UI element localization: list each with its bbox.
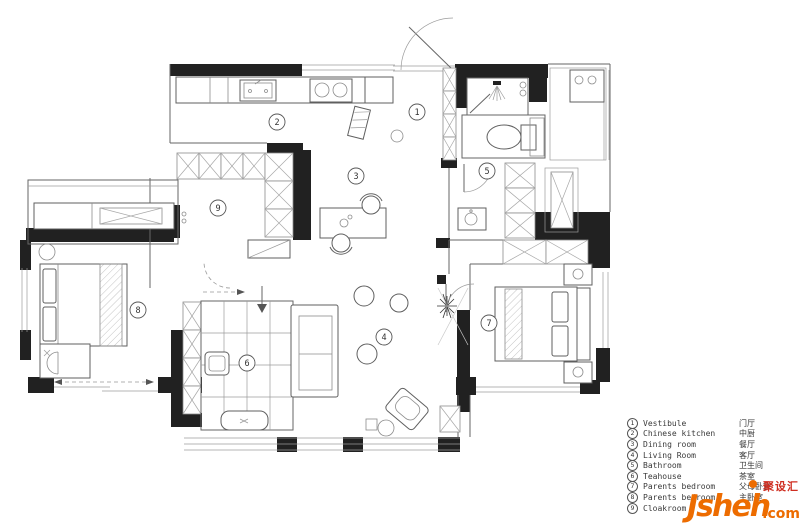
legend-number: 8: [627, 492, 638, 503]
stool: [391, 130, 403, 142]
bench: [221, 411, 268, 430]
legend-item: 3 Dining room 餐厅: [627, 439, 799, 450]
dresser: [248, 240, 290, 258]
legend-label-en: Vestibule: [643, 419, 739, 428]
room-label-2: 2: [269, 114, 285, 130]
toilet-icon: [487, 125, 536, 150]
legend-label-en: Dining room: [643, 440, 739, 449]
legend-item: 1 Vestibule 门厅: [627, 418, 799, 429]
step-arrow: [203, 286, 267, 313]
dining: [320, 194, 386, 254]
pouf: [354, 286, 374, 306]
legend-label-en: Living Room: [643, 451, 739, 460]
room-label-3: 3: [348, 168, 364, 184]
vanity-sink: [458, 208, 486, 230]
legend-number: 4: [627, 450, 638, 461]
legend-label-cn: 门厅: [739, 418, 755, 429]
legend-label-cn: 客厅: [739, 450, 755, 461]
stool: [39, 244, 55, 260]
tall-cabinet: [348, 106, 371, 139]
headboard: [577, 288, 590, 360]
svg-text:3: 3: [353, 172, 358, 182]
shower-icon: [489, 81, 505, 101]
sliding-door-8: [54, 379, 158, 391]
pillow: [43, 307, 56, 341]
bedroom-7: [495, 264, 592, 383]
room-label-4: 4: [376, 329, 392, 345]
pillow: [552, 292, 568, 322]
tea-table: [205, 352, 229, 375]
legend-label-en: Bathroom: [643, 461, 739, 470]
blanket: [100, 264, 122, 346]
svg-text:6: 6: [244, 359, 249, 369]
bed-8: [40, 264, 127, 346]
legend-number: 1: [627, 418, 638, 429]
svg-text:8: 8: [135, 306, 140, 316]
sofa: [291, 305, 338, 397]
pillow: [43, 269, 56, 303]
room-label-6: 6: [239, 355, 255, 371]
armchair: [384, 387, 430, 432]
svg-text:2: 2: [274, 118, 279, 128]
legend-label-cn: 餐厅: [739, 439, 755, 450]
legend-number: 7: [627, 481, 638, 492]
pouf: [357, 344, 377, 364]
cloakroom: [177, 153, 293, 288]
nightstand: [564, 264, 592, 285]
room-label-9: 9: [210, 200, 226, 216]
legend-item: 5 Bathroom 卫生间: [627, 460, 799, 471]
legend-number: 3: [627, 439, 638, 450]
logo-brand: Jsheh: [687, 489, 769, 524]
page: { "plan": { "labels": [ {"num":"1"},{"nu…: [0, 0, 800, 521]
legend-item: 4 Living Room 客厅: [627, 450, 799, 461]
nightstand: [564, 362, 592, 383]
blanket: [505, 289, 522, 359]
wardrobe-8: [183, 302, 201, 414]
sink-icon: [240, 80, 276, 101]
logo-tld: .com: [762, 506, 800, 522]
room-label-7: 7: [481, 315, 497, 331]
side-table: [366, 419, 377, 430]
kitchen: [176, 77, 393, 139]
legend-number: 9: [627, 503, 638, 514]
legend-number: 6: [627, 471, 638, 482]
logo-cn-badge: 聚设汇: [763, 478, 799, 494]
pouf: [390, 294, 408, 312]
svg-text:9: 9: [215, 204, 220, 214]
bed-7: [495, 287, 590, 361]
bedroom7-door: [437, 275, 474, 312]
svg-text:1: 1: [414, 108, 419, 118]
fridge: [365, 77, 393, 103]
entrance-door: [393, 18, 455, 71]
legend-label-cn: 卫生间: [739, 460, 763, 471]
legend-label-cn: 中厨: [739, 428, 755, 439]
side-stool: [378, 420, 394, 436]
watermark-logo: Jsheh 聚设汇 .com: [687, 477, 799, 520]
legend-number: 5: [627, 460, 638, 471]
svg-text:5: 5: [484, 167, 489, 177]
room-label-1: 1: [409, 104, 425, 120]
room-label-5: 5: [479, 163, 495, 179]
room-label-8: 8: [130, 302, 146, 318]
stove-icon: [310, 79, 352, 102]
shower-door: [470, 94, 490, 113]
desk: [40, 344, 90, 378]
legend-item: 2 Chinese kitchen 中厨: [627, 429, 799, 440]
svg-text:4: 4: [381, 333, 386, 343]
legend-label-en: Chinese kitchen: [643, 429, 739, 438]
washer-icon: [570, 70, 604, 102]
svg-text:7: 7: [486, 319, 491, 329]
legend-number: 2: [627, 428, 638, 439]
logo-dot-icon: [749, 480, 757, 488]
pillow: [552, 326, 568, 356]
closet-door-swing: [204, 262, 230, 288]
laundry-nook: [550, 68, 606, 160]
